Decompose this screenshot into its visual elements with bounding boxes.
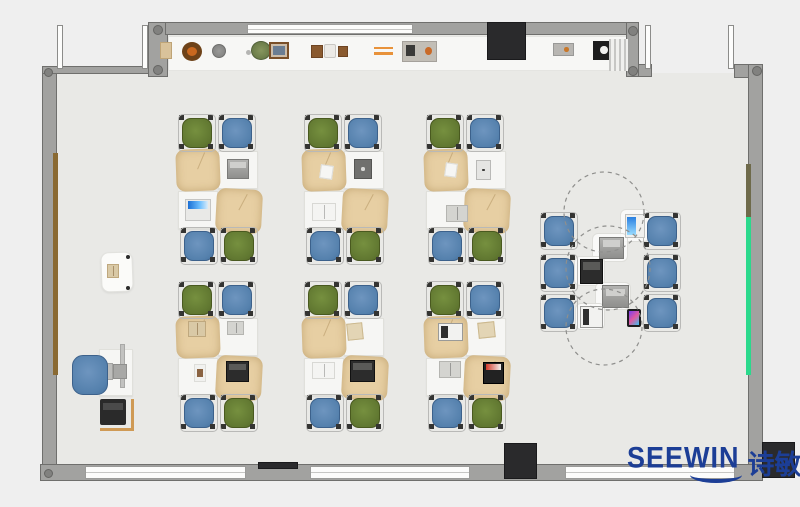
classroom-floorplan-render: SEEWIN 诗敏 [0,0,800,507]
collab-tables-dashed-outline [0,0,800,507]
logo-smile-arc [690,467,742,483]
folding-table-outline [566,226,650,310]
folding-table-outline [566,289,642,365]
seewin-chinese-name: 诗敏 [748,443,800,482]
seewin-logo: SEEWIN 诗敏 [627,443,800,482]
